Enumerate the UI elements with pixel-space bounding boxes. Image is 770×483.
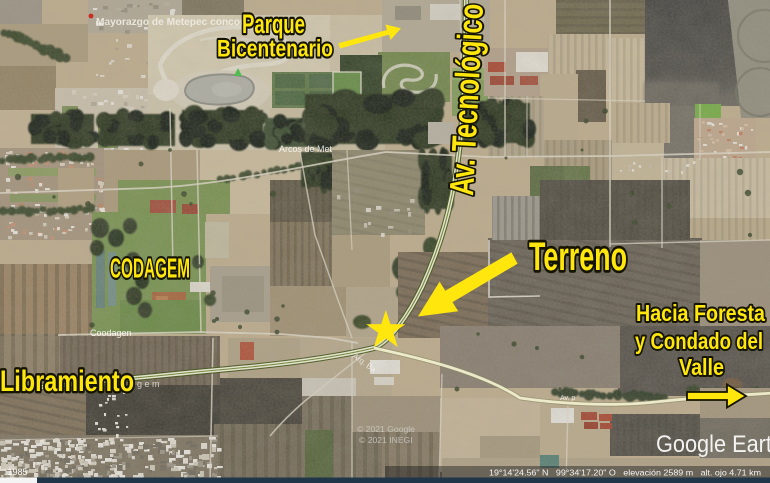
svg-text:Av. p: Av. p bbox=[560, 395, 575, 402]
svg-text:Bicentenario: Bicentenario bbox=[217, 36, 333, 63]
svg-text:© 2021 Google: © 2021 Google bbox=[357, 424, 415, 434]
svg-text:Parque: Parque bbox=[242, 9, 305, 39]
svg-text:19°14'24.56" N 99°34'17.20": 19°14'24.56" N 99°34'17.20" O elevación … bbox=[489, 468, 761, 478]
svg-text:↓1985: ↓1985 bbox=[3, 467, 28, 477]
svg-text:© 2021 INEGI: © 2021 INEGI bbox=[359, 435, 413, 445]
svg-text:Libramiento: Libramiento bbox=[0, 365, 134, 398]
svg-text:Arcos de Met: Arcos de Met bbox=[279, 144, 333, 154]
svg-text:y Condado del: y Condado del bbox=[635, 328, 763, 354]
svg-text:g e m: g e m bbox=[137, 379, 160, 389]
svg-text:Coodagen: Coodagen bbox=[90, 328, 132, 338]
svg-text:Hacia Foresta: Hacia Foresta bbox=[636, 300, 765, 326]
svg-text:Terreno: Terreno bbox=[529, 235, 627, 279]
svg-text:Valle: Valle bbox=[679, 354, 724, 380]
svg-text:CODAGEM: CODAGEM bbox=[110, 253, 190, 284]
svg-text:Google Earth: Google Earth bbox=[656, 431, 770, 458]
svg-text:Mayorazgo de Metepec concor: Mayorazgo de Metepec concor bbox=[96, 17, 244, 28]
